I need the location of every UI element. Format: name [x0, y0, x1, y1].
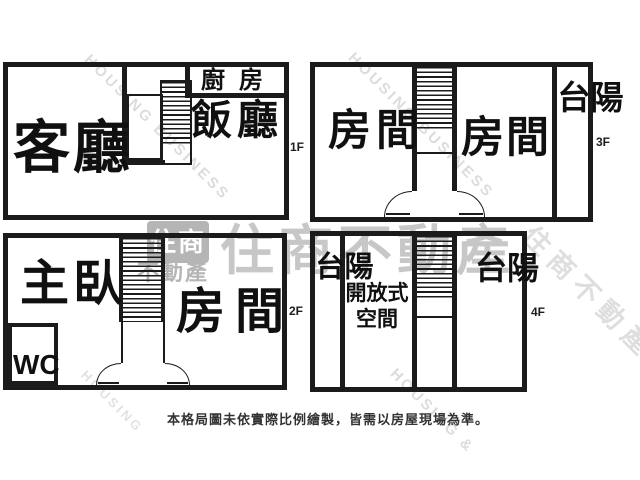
floorplan-sheet: 住商不動產 住商 不動產 HOUSING BUSINESS HOUSING BU…: [0, 0, 640, 480]
room-label-balcony-right: 陽台: [473, 251, 537, 387]
wall: [452, 236, 457, 387]
door-leaf: [167, 382, 188, 384]
floor-tag-3f: 3F: [596, 136, 610, 148]
door-leaf: [98, 382, 119, 384]
stair-steps: [162, 82, 190, 144]
corridor-wall: [163, 322, 165, 363]
stairs: [417, 236, 452, 300]
room-label-bedroom-left: 房間: [328, 110, 424, 153]
corridor-wall: [121, 322, 123, 363]
room-label-master: 主臥: [20, 260, 126, 309]
floor-tag-1f: 1F: [290, 141, 304, 153]
floorplan-4f: 陽台 開放式空間 陽台: [310, 231, 527, 392]
wall: [452, 67, 457, 191]
floorplan-1f: 廚房 飯廳 客廳: [3, 62, 289, 220]
room-label-bedroom-right: 房間: [461, 117, 551, 160]
stair-steps: [123, 238, 161, 322]
room-label-kitchen: 廚房: [194, 69, 284, 93]
wc-room: WC: [8, 323, 58, 385]
room-label-wc: WC: [13, 351, 60, 379]
disclaimer-text: 本格局圖未依實際比例繪製，皆需以房屋現場為準。: [167, 409, 489, 428]
room-label-open-space: 開放式空間: [343, 281, 411, 334]
room-label-bedroom: 房間: [176, 288, 294, 337]
stair-landing-line: [417, 316, 452, 318]
room-label-balcony: 陽台: [555, 80, 621, 217]
door-leaf: [459, 213, 483, 215]
door-leaf: [386, 213, 410, 215]
floor-tag-2f: 2F: [289, 305, 303, 317]
room-label-dining: 飯廳: [191, 100, 283, 141]
floorplan-2f: WC 主臥 房間: [3, 233, 287, 390]
room-label-living: 客廳: [13, 120, 133, 177]
floor-tag-4f: 4F: [531, 306, 545, 318]
stairs: [160, 80, 192, 165]
floorplan-3f: 房間 房間 陽台: [310, 62, 593, 222]
